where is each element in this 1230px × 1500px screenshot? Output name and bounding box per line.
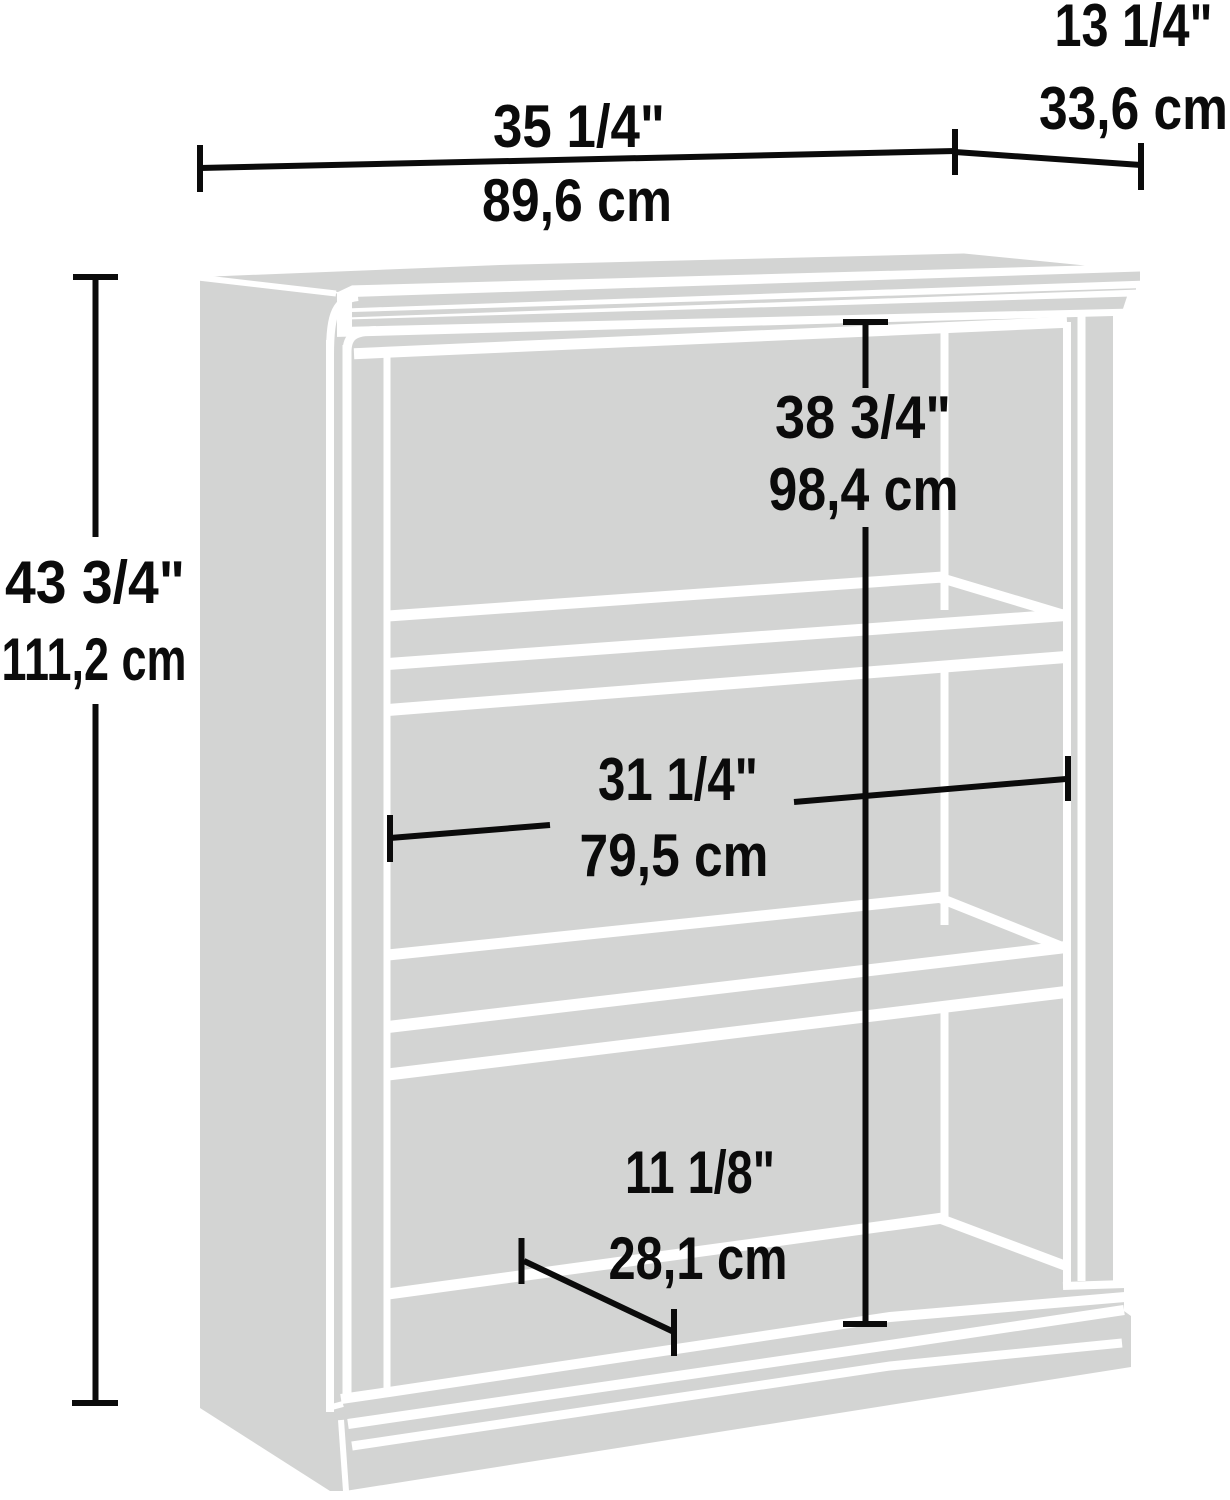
svg-text:89,6 cm: 89,6 cm: [482, 166, 672, 233]
svg-text:35 1/4": 35 1/4": [493, 93, 665, 160]
svg-text:33,6 cm: 33,6 cm: [1039, 74, 1228, 142]
svg-text:111,2 cm: 111,2 cm: [2, 627, 187, 694]
svg-text:11 1/8": 11 1/8": [625, 1140, 775, 1207]
svg-text:98,4 cm: 98,4 cm: [769, 455, 959, 522]
svg-text:13 1/4": 13 1/4": [1055, 0, 1213, 59]
svg-text:79,5 cm: 79,5 cm: [580, 821, 769, 889]
svg-text:31 1/4": 31 1/4": [598, 745, 758, 813]
svg-text:28,1 cm: 28,1 cm: [609, 1225, 788, 1292]
svg-text:38 3/4": 38 3/4": [775, 384, 951, 451]
svg-text:43 3/4": 43 3/4": [5, 550, 185, 617]
